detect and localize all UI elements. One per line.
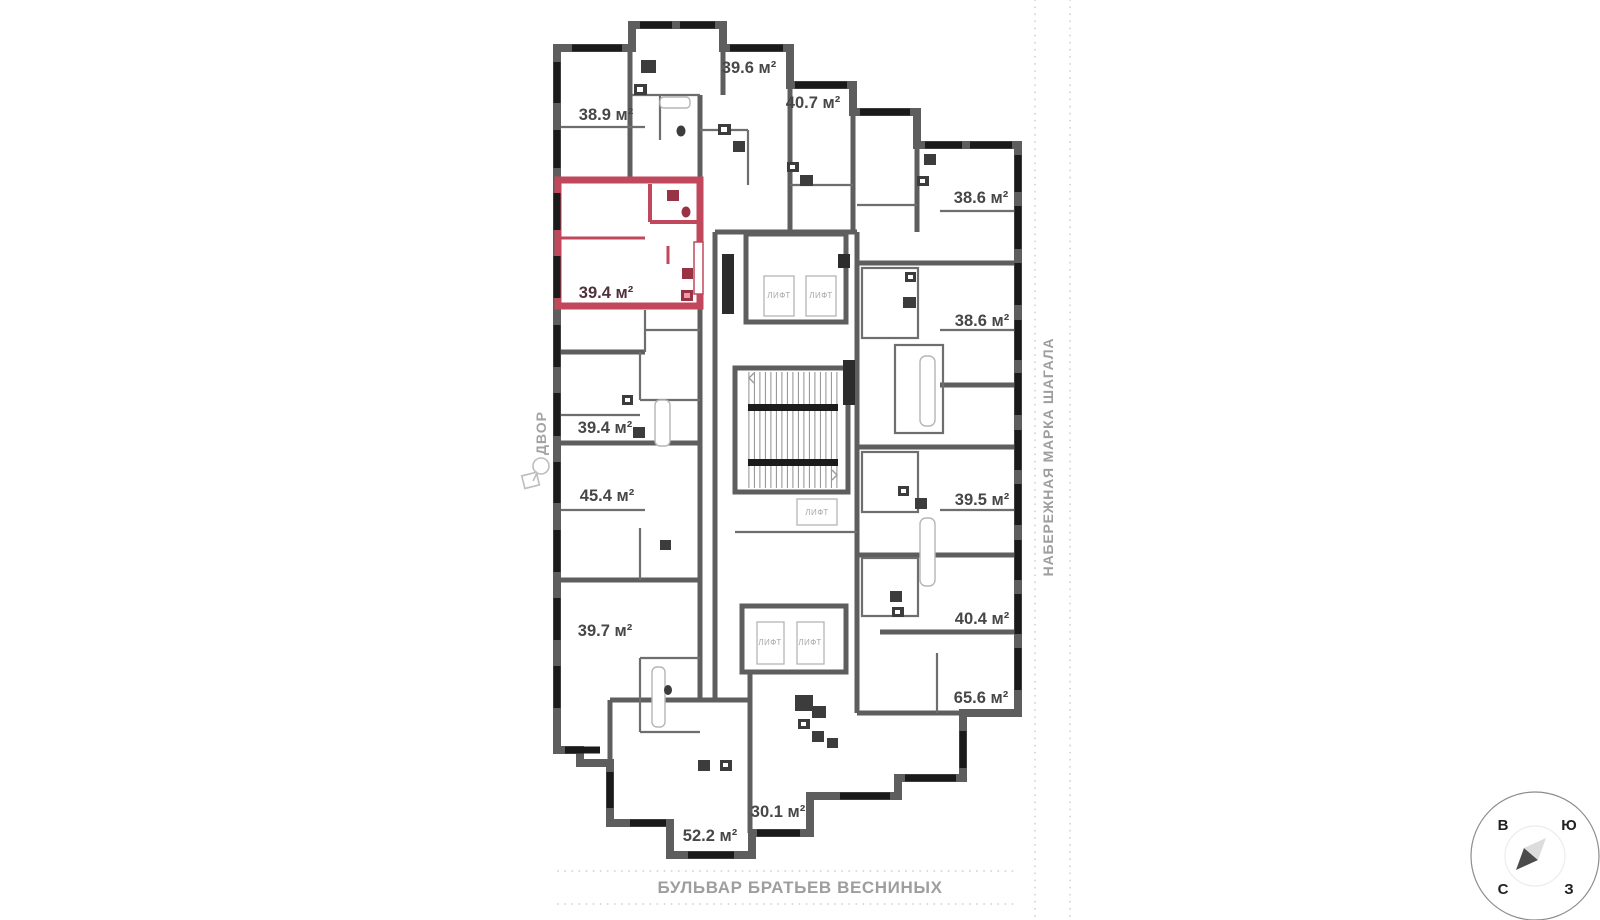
apartment-65-6[interactable]: 65.6 м² bbox=[861, 636, 1014, 709]
courtyard-icon bbox=[522, 458, 549, 488]
apartment-hit-area[interactable] bbox=[561, 447, 696, 576]
bathtub-icon bbox=[660, 97, 690, 108]
apartment-hit-area[interactable] bbox=[561, 584, 696, 696]
apartment-area-label[interactable]: 40.7 м² bbox=[786, 94, 841, 112]
elevator-label: ЛИФТ bbox=[798, 638, 822, 647]
apartment-39-4-selected[interactable]: 39.4 м² bbox=[558, 180, 703, 306]
street-right: НАБЕРЕЖНАЯ МАРКА ШАГАЛА bbox=[1035, 0, 1070, 920]
floor-plan-canvas: ЛИФТ ЛИФТ ЛИФТ ЛИФТ ЛИФТ 39.4 м² bbox=[0, 0, 1600, 920]
apartment-38-6-a[interactable]: 38.6 м² bbox=[861, 149, 1014, 259]
stove-icon bbox=[641, 60, 656, 73]
elevator-label: ЛИФТ bbox=[805, 508, 829, 517]
apartment-area-label[interactable]: 45.4 м² bbox=[580, 487, 635, 505]
apartment-area-label[interactable]: 38.6 м² bbox=[955, 312, 1010, 330]
compass: В Ю С З bbox=[1471, 792, 1599, 920]
duct bbox=[843, 360, 855, 405]
apartment-area-label[interactable]: 40.4 м² bbox=[955, 610, 1010, 628]
apartment-area-label[interactable]: 39.5 м² bbox=[955, 491, 1010, 509]
apartment-52-2[interactable]: 52.2 м² bbox=[614, 704, 746, 851]
courtyard-annotation: ДВОР bbox=[522, 411, 549, 488]
apartment-area-label[interactable]: 39.4 м² bbox=[578, 419, 633, 437]
compass-west-label: З bbox=[1564, 881, 1573, 898]
apartment-area-label[interactable]: 30.1 м² bbox=[751, 803, 806, 821]
stair-landing bbox=[748, 459, 838, 466]
street-name-right: НАБЕРЕЖНАЯ МАРКА ШАГАЛА bbox=[1040, 338, 1056, 577]
elevator-label: ЛИФТ bbox=[767, 291, 791, 300]
apartment-40-7[interactable]: 40.7 м² bbox=[786, 89, 849, 229]
elevator-label: ЛИФТ bbox=[758, 638, 782, 647]
washer-icon-inner bbox=[684, 293, 690, 298]
stair-treads bbox=[748, 372, 838, 404]
street-name-bottom: БУЛЬВАР БРАТЬЕВ ВЕСНИНЫХ bbox=[657, 878, 942, 897]
apartment-38-6-b[interactable]: 38.6 м² bbox=[861, 267, 1014, 381]
apartment-40-4[interactable]: 40.4 м² bbox=[861, 559, 1014, 628]
courtyard-label: ДВОР bbox=[533, 411, 549, 455]
compass-east-label: В bbox=[1498, 817, 1509, 834]
compass-north-label: С bbox=[1498, 881, 1509, 898]
sink-icon bbox=[667, 190, 679, 201]
apartment-39-5[interactable]: 39.5 м² bbox=[861, 451, 1014, 551]
stove-icon bbox=[682, 268, 693, 279]
apartment-area-label[interactable]: 39.4 м² bbox=[579, 284, 634, 302]
apartment-45-4[interactable]: 45.4 м² bbox=[561, 447, 696, 576]
building-outline: ЛИФТ ЛИФТ ЛИФТ ЛИФТ ЛИФТ 39.4 м² bbox=[557, 25, 1018, 855]
apartment-area-label[interactable]: 39.7 м² bbox=[578, 622, 633, 640]
elevator-label: ЛИФТ bbox=[809, 291, 833, 300]
apartment-38-9[interactable]: 38.9 м² bbox=[561, 52, 634, 176]
stair-treads bbox=[748, 411, 838, 459]
apartment-area-label[interactable]: 52.2 м² bbox=[683, 827, 738, 845]
toilet-icon bbox=[682, 207, 691, 218]
duct bbox=[722, 254, 734, 314]
toilet-icon bbox=[677, 126, 686, 137]
floorplan-page: ЛИФТ ЛИФТ ЛИФТ ЛИФТ ЛИФТ 39.4 м² bbox=[0, 0, 1600, 920]
street-bottom: БУЛЬВАР БРАТЬЕВ ВЕСНИНЫХ bbox=[558, 871, 1015, 904]
apartment-area-label[interactable]: 65.6 м² bbox=[954, 689, 1009, 707]
apartment-area-label[interactable]: 38.9 м² bbox=[579, 106, 634, 124]
apartment-39-7[interactable]: 39.7 м² bbox=[561, 584, 696, 696]
apartment-39-6[interactable]: 39.6 м² bbox=[700, 48, 786, 168]
compass-south-label: Ю bbox=[1561, 817, 1576, 834]
stair-landing bbox=[748, 404, 838, 411]
apartment-area-label[interactable]: 39.6 м² bbox=[722, 59, 777, 77]
apartment-area-label[interactable]: 38.6 м² bbox=[954, 189, 1009, 207]
stair-treads bbox=[748, 466, 838, 488]
duct bbox=[838, 254, 850, 268]
apartment-39-4[interactable]: 39.4 м² bbox=[561, 356, 696, 439]
balcony-window bbox=[694, 242, 703, 294]
apartment-hit-area[interactable] bbox=[754, 676, 874, 792]
